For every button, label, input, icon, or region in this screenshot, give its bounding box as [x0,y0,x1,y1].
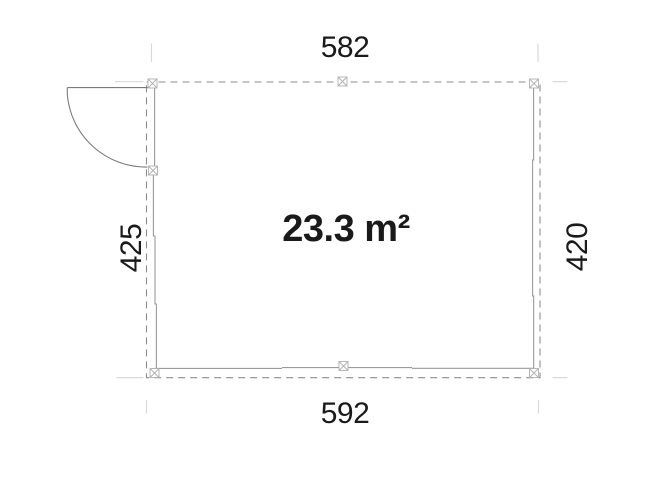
post-marker-bottom-right [530,369,539,378]
post-marker-top-left [148,79,157,88]
post-marker-bottom-left [150,369,159,378]
floor-plan-canvas: 582 592 425 420 23.3 m² [0,0,667,500]
post-marker-top-center [338,77,347,86]
door-swing [67,88,148,167]
dimension-label-top: 582 [321,33,370,63]
post-marker-top-right [530,79,539,88]
dimension-label-left: 425 [117,224,147,273]
wall-line-right [533,88,534,368]
post-marker-bottom-center [339,362,348,371]
dimension-label-bottom: 592 [321,399,370,429]
door-swing-arc [67,95,147,168]
dimension-label-right: 420 [563,223,593,272]
post-marker-door-jamb [149,166,158,175]
wall-line-left [153,175,156,368]
area-label: 23.3 m² [282,210,409,248]
